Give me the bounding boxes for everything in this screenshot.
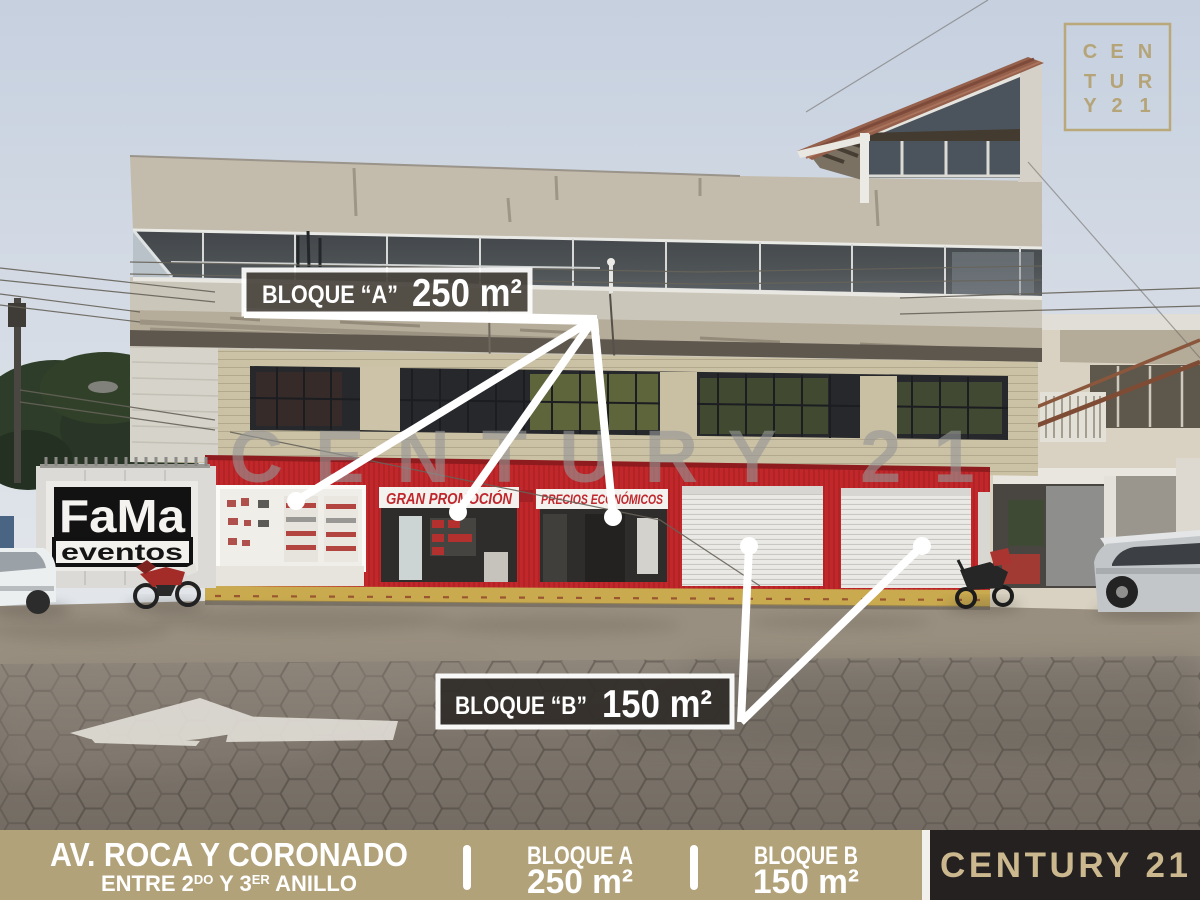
- svg-text:FaMa: FaMa: [59, 490, 185, 542]
- svg-text:250 m²: 250 m²: [527, 863, 633, 900]
- svg-text:AV. ROCA Y CORONADO: AV. ROCA Y CORONADO: [50, 836, 408, 873]
- svg-text:N: N: [1138, 41, 1152, 63]
- svg-text:150 m²: 150 m²: [753, 863, 859, 900]
- svg-text:C: C: [1083, 41, 1097, 63]
- svg-text:ENTRE 2DO Y 3ER ANILLO: ENTRE 2DO Y 3ER ANILLO: [101, 871, 357, 896]
- svg-text:CENTURY 21: CENTURY 21: [940, 846, 1188, 885]
- svg-text:150 m²: 150 m²: [602, 683, 712, 726]
- svg-text:Y: Y: [1083, 95, 1097, 117]
- svg-text:eventos: eventos: [61, 539, 183, 565]
- svg-text:BLOQUE “A”: BLOQUE “A”: [262, 281, 398, 309]
- svg-text:2: 2: [1111, 95, 1122, 117]
- svg-text:E: E: [1110, 41, 1123, 63]
- svg-text:R: R: [1138, 71, 1153, 93]
- svg-text:1: 1: [1139, 95, 1150, 117]
- svg-text:T: T: [1084, 71, 1096, 93]
- svg-text:U: U: [1110, 71, 1124, 93]
- svg-text:250 m²: 250 m²: [412, 272, 522, 315]
- svg-text:BLOQUE “B”: BLOQUE “B”: [455, 692, 587, 720]
